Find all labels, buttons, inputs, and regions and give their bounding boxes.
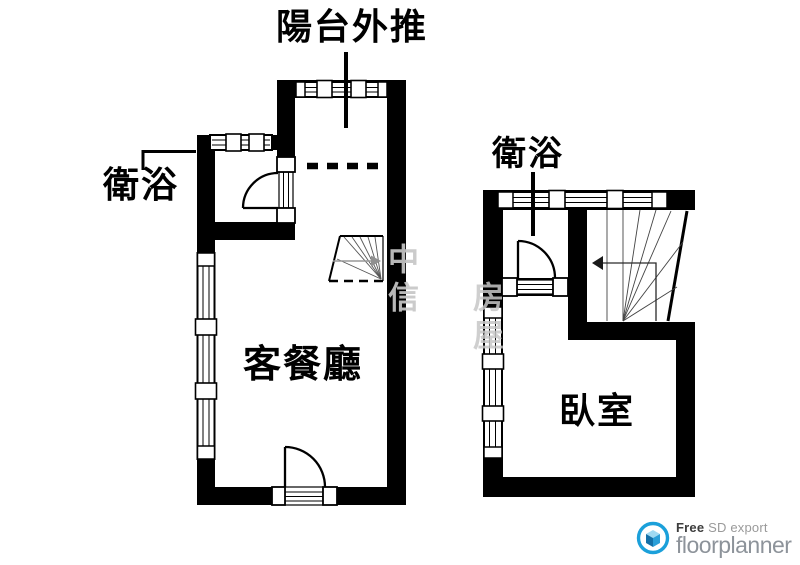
right-bathroom-door-frame <box>502 278 568 296</box>
stair-outer-edge <box>668 211 687 321</box>
bathroom-divider-wall <box>277 80 295 157</box>
living-dining-room-label: 客餐廳 <box>243 346 363 384</box>
door-arc <box>243 173 278 208</box>
stairwell-bottom-wall <box>568 322 695 340</box>
floorplanner-logo: Free SD export floorplanner <box>635 520 791 556</box>
right-bathroom-door <box>518 241 555 278</box>
left-stairs <box>329 236 383 281</box>
right-top-window <box>498 191 667 209</box>
right-plan <box>483 172 696 497</box>
door-arc <box>518 241 555 278</box>
right-stairs <box>592 210 687 321</box>
stair-direction-arrow-icon <box>371 256 381 267</box>
entry-door <box>285 447 325 487</box>
logo-brand-label: floorplanner <box>676 534 791 556</box>
floorplan-canvas: 陽台外推 衛浴 衛浴 客餐廳 臥室 中信 房屋 Free SD export f… <box>0 0 800 565</box>
floorplan-drawing <box>0 0 800 565</box>
stair-direction-arrow-icon <box>592 256 603 270</box>
logo-text: Free SD export floorplanner <box>676 521 791 556</box>
bottom-wall <box>483 477 695 497</box>
left-bathroom-window <box>210 134 272 151</box>
bedroom-left-window <box>483 307 504 458</box>
living-left-window <box>196 253 217 459</box>
entry-door-frame <box>272 487 337 505</box>
right-wall <box>387 80 406 505</box>
bathroom-bottom-wall <box>197 222 295 240</box>
left-bathroom-door <box>243 173 278 208</box>
door-arc <box>285 447 325 487</box>
left-plan <box>143 52 406 505</box>
bedroom-label: 臥室 <box>559 393 635 429</box>
bathroom-right-label: 衛浴 <box>492 137 564 171</box>
bathroom-left-label: 衛浴 <box>103 167 179 203</box>
balcony-window <box>296 81 387 98</box>
stairwell-left-wall <box>568 210 587 340</box>
right-wall <box>676 322 695 497</box>
floorplanner-icon <box>635 520 671 556</box>
right-plan-walls <box>483 190 695 497</box>
left-bathroom-door-frame <box>277 157 295 223</box>
balcony-annotation-label: 陽台外推 <box>276 9 428 45</box>
